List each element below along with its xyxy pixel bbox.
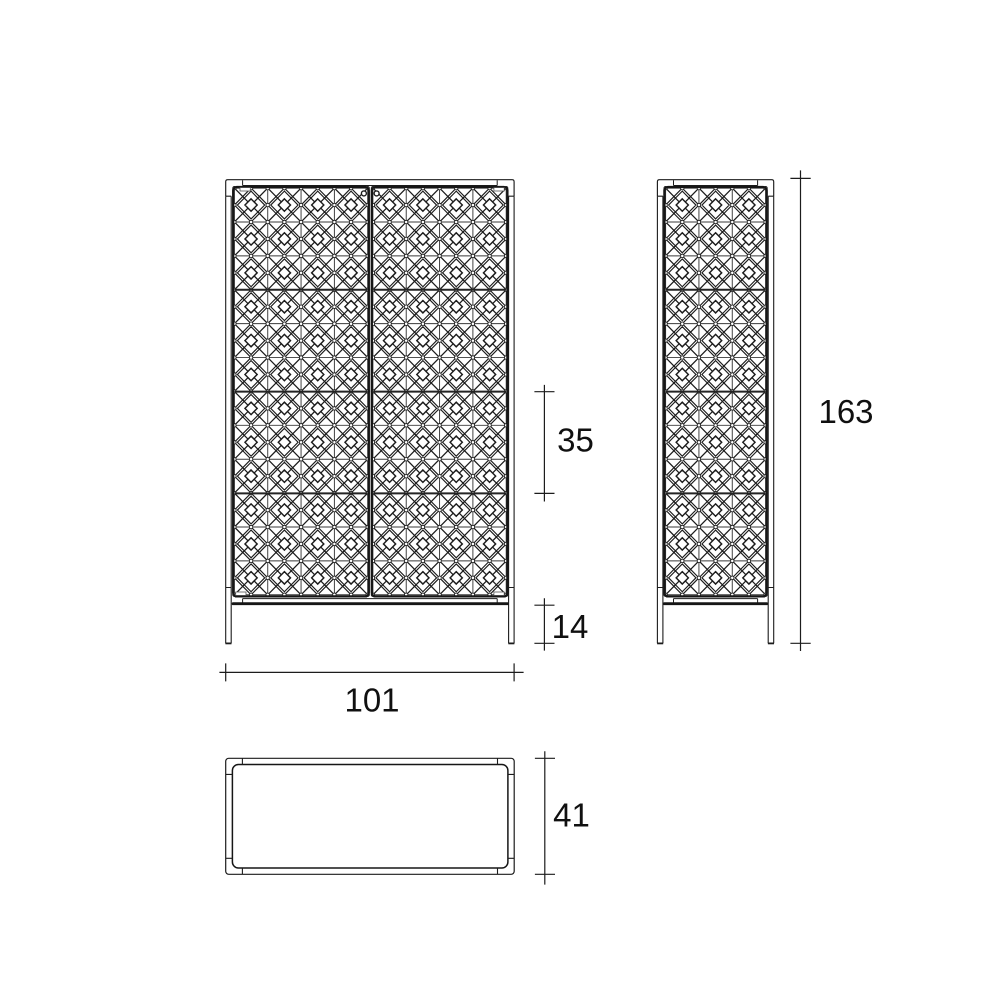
svg-text:163: 163 <box>818 393 873 430</box>
svg-text:35: 35 <box>557 422 594 459</box>
svg-text:41: 41 <box>553 797 590 834</box>
svg-text:101: 101 <box>344 682 399 719</box>
svg-text:14: 14 <box>552 608 589 645</box>
